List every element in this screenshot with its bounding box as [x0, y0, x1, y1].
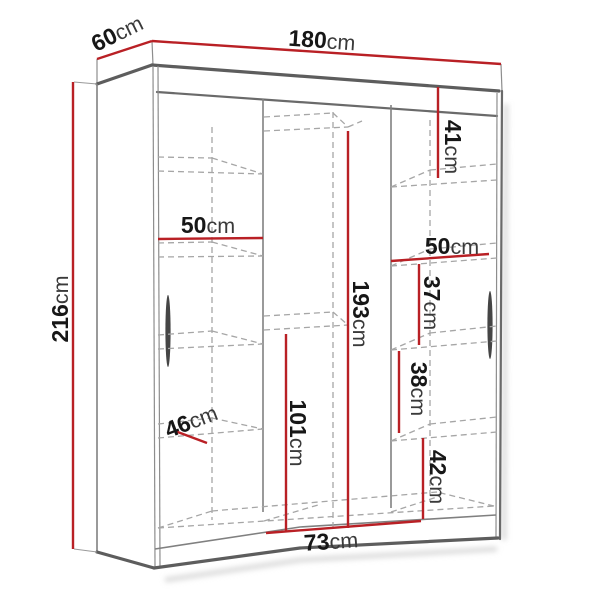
dimension-label-193: 193cm — [348, 280, 374, 347]
dimension-line-50-left — [158, 238, 263, 239]
crown-right-edge — [501, 64, 502, 91]
dimension-unit: cm — [450, 235, 479, 259]
dimension-value: 41 — [440, 120, 466, 146]
right-edge-outer — [500, 91, 502, 539]
dimension-value: 50 — [425, 233, 451, 259]
height-extension-bottom — [74, 549, 97, 552]
dimension-label-height: 216cm — [47, 275, 73, 342]
dimension-unit: cm — [348, 319, 372, 348]
dimension-unit: cm — [285, 438, 309, 467]
crown-front-left-edge — [152, 41, 153, 65]
dimension-label-73: 73cm — [303, 526, 359, 556]
dimension-value: 101 — [285, 399, 311, 438]
left-door-handle — [165, 295, 170, 367]
dimension-unit: cm — [49, 275, 73, 304]
front-left-edge-inner — [158, 66, 160, 566]
body-top-edge — [152, 65, 499, 91]
left-side-bottom-edge — [97, 552, 154, 568]
diagram-canvas: 60cm 180cm 216cm 41cm 50cm 50cm 37cm 193… — [0, 0, 600, 600]
dimension-unit: cm — [440, 145, 464, 174]
dimension-value: 37 — [419, 276, 445, 302]
middle-mid-shelf — [264, 312, 348, 330]
dimension-value: 193 — [348, 280, 374, 318]
dimension-unit: cm — [206, 214, 235, 238]
dimension-label-50-left: 50cm — [181, 212, 235, 238]
dimension-label-38: 38cm — [406, 362, 432, 416]
height-extension-top — [74, 82, 97, 84]
middle-top-shelf — [264, 113, 362, 131]
dimension-unit: cm — [419, 301, 443, 330]
left-shelf-3 — [158, 331, 263, 349]
front-left-edge-outer — [153, 66, 155, 567]
crown-bottom-left-edge — [97, 65, 152, 84]
dimension-value: 42 — [425, 450, 451, 476]
right-shelf-3 — [391, 326, 497, 350]
dimension-unit: cm — [326, 29, 356, 55]
dimension-value: 73 — [303, 528, 330, 556]
right-edge-inner — [496, 93, 497, 537]
left-shelf-1 — [158, 157, 263, 174]
dimension-value: 38 — [406, 362, 432, 388]
right-door-handle — [487, 291, 492, 359]
interior-top-line — [157, 92, 497, 116]
dimension-label-37: 37cm — [419, 276, 445, 330]
cabinet-shadow — [165, 104, 506, 580]
dimension-value: 180 — [288, 25, 328, 54]
dimension-label-50-right: 50cm — [425, 233, 479, 259]
dimension-unit: cm — [329, 528, 359, 554]
wardrobe-dimension-diagram: 60cm 180cm 216cm 41cm 50cm 50cm 37cm 193… — [0, 0, 600, 600]
dimension-unit: cm — [425, 475, 449, 504]
dimension-label-42: 42cm — [425, 450, 451, 504]
dimension-value: 50 — [181, 212, 207, 238]
dimension-label-101: 101cm — [285, 399, 311, 466]
right-shelf-4 — [391, 417, 497, 441]
dimension-unit: cm — [406, 387, 430, 416]
dimension-label-depth: 60cm — [87, 9, 147, 56]
dimension-label-width: 180cm — [288, 25, 357, 56]
dimension-label-41: 41cm — [440, 120, 466, 174]
dimension-value: 216 — [47, 304, 73, 342]
left-shelf-2 — [158, 242, 263, 257]
